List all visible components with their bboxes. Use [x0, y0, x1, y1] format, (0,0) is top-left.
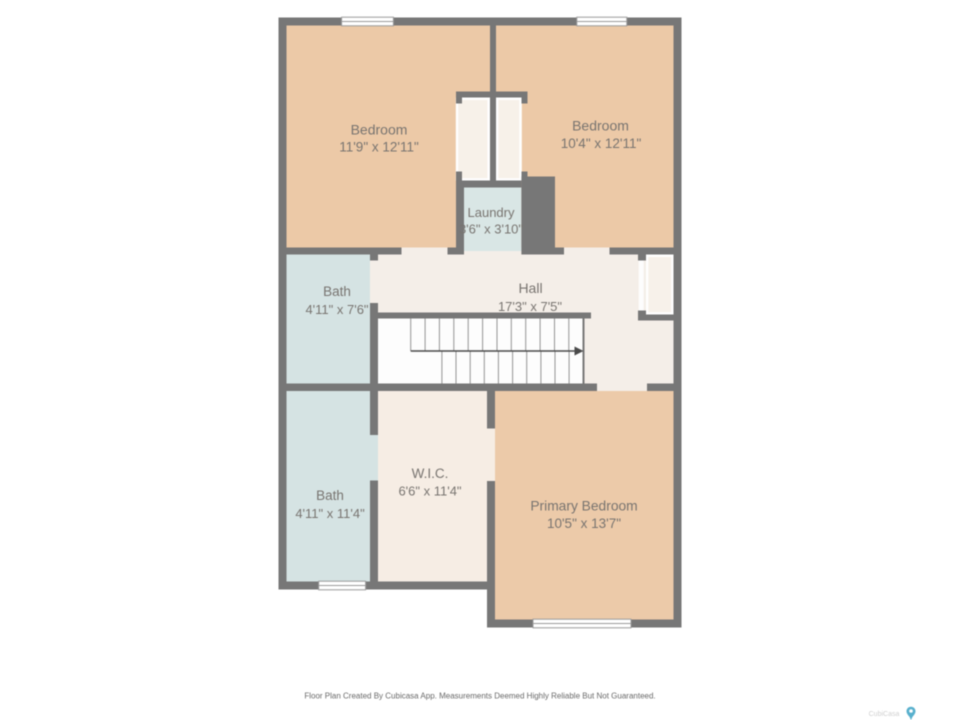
- svg-text:4'11" x 7'6": 4'11" x 7'6": [305, 302, 368, 317]
- svg-text:Bath: Bath: [323, 284, 351, 299]
- svg-text:6'6" x 11'4": 6'6" x 11'4": [398, 484, 461, 499]
- svg-text:Hall: Hall: [518, 280, 542, 296]
- svg-text:W.I.C.: W.I.C.: [412, 466, 449, 481]
- svg-text:11'9" x 12'11": 11'9" x 12'11": [339, 140, 419, 155]
- svg-text:Bedroom: Bedroom: [572, 118, 629, 134]
- svg-text:Bath: Bath: [316, 488, 344, 503]
- svg-text:Bedroom: Bedroom: [351, 122, 408, 138]
- svg-text:4'11" x 11'4": 4'11" x 11'4": [295, 506, 365, 521]
- svg-text:Floor Plan Created By Cubicasa: Floor Plan Created By Cubicasa App. Meas…: [304, 691, 655, 700]
- svg-text:Laundry: Laundry: [468, 205, 515, 220]
- svg-text:Primary Bedroom: Primary Bedroom: [530, 499, 637, 514]
- svg-text:3'6" x 3'10": 3'6" x 3'10": [459, 222, 523, 237]
- svg-text:10'5" x 13'7": 10'5" x 13'7": [547, 516, 621, 531]
- svg-text:10'4" x 12'11": 10'4" x 12'11": [561, 136, 642, 151]
- svg-text:17'3" x 7'5": 17'3" x 7'5": [498, 299, 562, 314]
- svg-text:CubiCasa: CubiCasa: [869, 711, 900, 718]
